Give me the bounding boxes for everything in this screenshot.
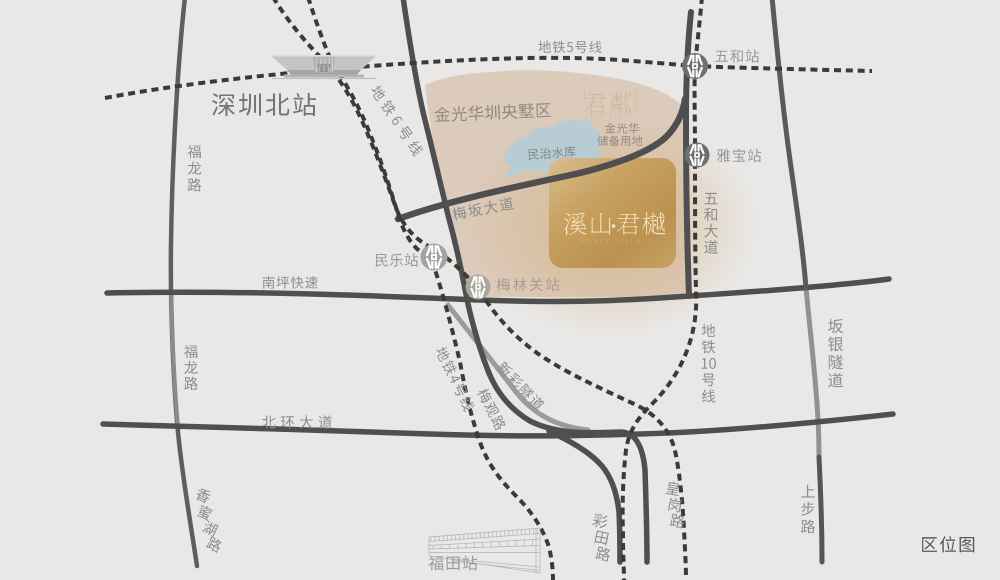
svg-text:SUNNY VILLA: SUNNY VILLA	[581, 239, 642, 245]
svg-text:GUANGJUNLIN: GUANGJUNLIN	[580, 113, 633, 118]
